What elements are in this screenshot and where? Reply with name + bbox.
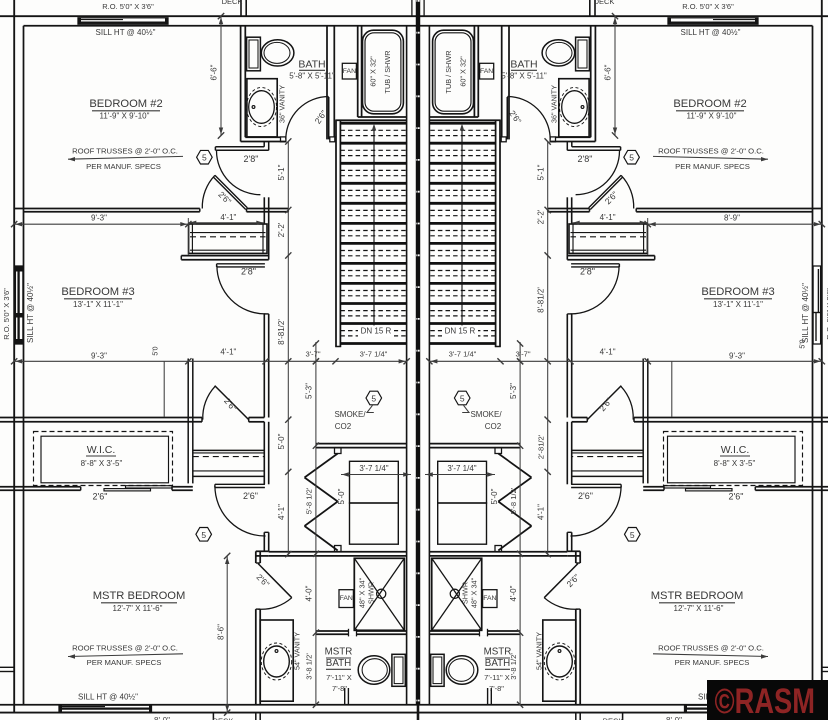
svg-text:5'-3": 5'-3" bbox=[305, 383, 314, 399]
svg-text:5'-0": 5'-0" bbox=[490, 488, 499, 504]
svg-text:8'-8" X 3'-5": 8'-8" X 3'-5" bbox=[81, 459, 123, 468]
svg-text:11'-9" X 9'-10": 11'-9" X 9'-10" bbox=[100, 112, 150, 121]
svg-text:8'-81/2': 8'-81/2' bbox=[536, 287, 545, 313]
svg-text:5'0: 5'0 bbox=[153, 346, 160, 355]
svg-text:BEDROOM #2: BEDROOM #2 bbox=[673, 98, 746, 110]
svg-text:4'-1": 4'-1" bbox=[536, 504, 545, 520]
svg-text:7'-11" X: 7'-11" X bbox=[484, 673, 510, 682]
svg-text:9'-3": 9'-3" bbox=[729, 351, 745, 360]
svg-text:3'-7 1/4": 3'-7 1/4" bbox=[360, 350, 388, 359]
svg-text:8'-0": 8'-0" bbox=[154, 716, 170, 720]
svg-text:TUB / SHWR: TUB / SHWR bbox=[444, 51, 453, 94]
svg-text:4'-1": 4'-1" bbox=[277, 504, 286, 520]
svg-text:ROOF TRUSSES @ 2'-0" O.C.: ROOF TRUSSES @ 2'-0" O.C. bbox=[658, 644, 764, 653]
svg-text:48" X 34": 48" X 34" bbox=[470, 577, 479, 608]
svg-text:5: 5 bbox=[201, 530, 206, 540]
svg-text:BEDROOM #3: BEDROOM #3 bbox=[701, 286, 774, 298]
svg-text:BEDROOM #2: BEDROOM #2 bbox=[89, 98, 162, 110]
svg-text:SHWR: SHWR bbox=[367, 582, 376, 604]
svg-text:W.I.C.: W.I.C. bbox=[87, 444, 116, 456]
svg-text:3'-7 1/4": 3'-7 1/4" bbox=[449, 350, 477, 359]
svg-text:W.I.C.: W.I.C. bbox=[721, 444, 750, 456]
svg-text:ROOF TRUSSES @ 2'-0" O.C.: ROOF TRUSSES @ 2'-0" O.C. bbox=[72, 644, 178, 653]
svg-text:4'-0": 4'-0" bbox=[305, 585, 314, 601]
svg-text:ROOF TRUSSES @ 2'-0" O.C.: ROOF TRUSSES @ 2'-0" O.C. bbox=[658, 147, 764, 156]
svg-text:R.O. 5'0" X 3'6": R.O. 5'0" X 3'6" bbox=[2, 288, 11, 340]
svg-text:7'-11" X: 7'-11" X bbox=[326, 673, 352, 682]
svg-text:2'6": 2'6" bbox=[729, 492, 744, 502]
svg-text:5: 5 bbox=[371, 394, 376, 404]
svg-text:2'8": 2'8" bbox=[580, 267, 595, 277]
svg-text:MSTR BEDROOM: MSTR BEDROOM bbox=[93, 590, 186, 602]
svg-text:5'-3": 5'-3" bbox=[509, 383, 518, 399]
svg-text:5'-1": 5'-1" bbox=[536, 164, 545, 180]
svg-text:5'-1": 5'-1" bbox=[277, 164, 286, 180]
svg-text:9'-3": 9'-3" bbox=[91, 214, 107, 223]
svg-text:60" X 32": 60" X 32" bbox=[368, 56, 377, 87]
svg-text:2'8": 2'8" bbox=[241, 267, 256, 277]
svg-text:MSTR: MSTR bbox=[325, 647, 353, 658]
svg-text:DECK: DECK bbox=[594, 0, 615, 6]
svg-text:6'-6": 6'-6" bbox=[604, 64, 613, 80]
svg-text:3'-8 1/2': 3'-8 1/2' bbox=[305, 653, 314, 680]
svg-text:SILL HT @ 40½": SILL HT @ 40½" bbox=[801, 283, 810, 343]
svg-text:DECK: DECK bbox=[222, 0, 243, 6]
svg-text:BEDROOM #3: BEDROOM #3 bbox=[61, 286, 134, 298]
svg-text:4'-1": 4'-1" bbox=[600, 213, 616, 222]
svg-text:SILL HT @ 40½": SILL HT @ 40½" bbox=[96, 28, 156, 37]
svg-text:13'-1" X 11'-1": 13'-1" X 11'-1" bbox=[713, 300, 763, 309]
svg-text:5: 5 bbox=[202, 153, 207, 163]
svg-text:MSTR: MSTR bbox=[484, 647, 512, 658]
svg-text:3'-7": 3'-7" bbox=[305, 350, 320, 359]
svg-text:4'-0": 4'-0" bbox=[509, 585, 518, 601]
svg-text:BATH: BATH bbox=[298, 59, 325, 71]
svg-text:5: 5 bbox=[630, 530, 635, 540]
svg-text:SMOKE/: SMOKE/ bbox=[470, 410, 502, 419]
svg-text:12'-7" X 11'-6": 12'-7" X 11'-6" bbox=[113, 604, 163, 613]
svg-text:7'-8": 7'-8" bbox=[332, 684, 347, 693]
svg-text:TUB / SHWR: TUB / SHWR bbox=[383, 51, 392, 94]
svg-text:FAN: FAN bbox=[483, 595, 496, 602]
svg-text:DN 15 R: DN 15 R bbox=[445, 326, 476, 335]
svg-text:5'-8 1/2': 5'-8 1/2' bbox=[305, 487, 314, 514]
svg-text:2'8": 2'8" bbox=[244, 154, 259, 164]
svg-text:5'-0": 5'-0" bbox=[337, 488, 346, 504]
svg-text:5: 5 bbox=[460, 394, 465, 404]
svg-text:8'-8" X 3'-5": 8'-8" X 3'-5" bbox=[714, 459, 756, 468]
svg-text:3'-7": 3'-7" bbox=[515, 350, 530, 359]
svg-text:48" X 34": 48" X 34" bbox=[358, 577, 367, 608]
svg-text:PER MANUF. SPECS: PER MANUF. SPECS bbox=[86, 162, 161, 171]
svg-text:FAN: FAN bbox=[343, 68, 356, 75]
svg-text:PER MANUF. SPECS: PER MANUF. SPECS bbox=[87, 658, 162, 667]
svg-text:7'-8": 7'-8" bbox=[489, 684, 504, 693]
svg-text:BATH: BATH bbox=[326, 658, 351, 669]
svg-text:R.O. 5'0" X 3'6": R.O. 5'0" X 3'6" bbox=[102, 2, 154, 11]
svg-text:5'-8" X 5'-11": 5'-8" X 5'-11" bbox=[289, 72, 335, 81]
svg-text:ROOF TRUSSES @ 2'-0" O.C.: ROOF TRUSSES @ 2'-0" O.C. bbox=[72, 147, 178, 156]
svg-text:R.O. 5'0" X 3'6": R.O. 5'0" X 3'6" bbox=[682, 2, 734, 11]
svg-text:DECK: DECK bbox=[603, 717, 624, 720]
svg-text:2'6": 2'6" bbox=[578, 491, 593, 501]
svg-text:11'-9" X 9'-10": 11'-9" X 9'-10" bbox=[687, 112, 737, 121]
svg-text:SILL HT @ 40½": SILL HT @ 40½" bbox=[681, 28, 741, 37]
svg-text:2'-81/2': 2'-81/2' bbox=[536, 434, 545, 459]
svg-text:SILL HT @ 40½": SILL HT @ 40½" bbox=[78, 693, 138, 702]
svg-text:BATH: BATH bbox=[485, 658, 510, 669]
svg-text:6'-6": 6'-6" bbox=[210, 64, 219, 80]
svg-text:BATH: BATH bbox=[510, 59, 537, 71]
svg-text:5: 5 bbox=[629, 153, 634, 163]
svg-text:©RASM: ©RASM bbox=[715, 682, 815, 720]
svg-text:2'6": 2'6" bbox=[93, 492, 108, 502]
svg-text:9'-3": 9'-3" bbox=[91, 351, 107, 360]
svg-text:3'-7 1/4": 3'-7 1/4" bbox=[359, 464, 388, 473]
svg-text:5'-8" X 5'-11": 5'-8" X 5'-11" bbox=[501, 72, 547, 81]
svg-text:PER MANUF. SPECS: PER MANUF. SPECS bbox=[675, 658, 750, 667]
svg-text:CO2: CO2 bbox=[485, 422, 502, 431]
svg-text:13'-1" X 11'-1": 13'-1" X 11'-1" bbox=[73, 300, 123, 309]
svg-text:CO2: CO2 bbox=[335, 422, 352, 431]
svg-text:2'-2': 2'-2' bbox=[277, 222, 286, 237]
svg-text:3'-8 1/2': 3'-8 1/2' bbox=[509, 653, 518, 680]
svg-text:MSTR BEDROOM: MSTR BEDROOM bbox=[651, 590, 744, 602]
svg-text:SILL HT @ 40½": SILL HT @ 40½" bbox=[26, 283, 35, 343]
svg-text:4'-1": 4'-1" bbox=[220, 348, 236, 357]
svg-text:FAN: FAN bbox=[340, 595, 353, 602]
svg-text:DECK: DECK bbox=[213, 717, 234, 720]
svg-text:FAN: FAN bbox=[480, 68, 493, 75]
svg-text:60" X 32": 60" X 32" bbox=[459, 56, 468, 87]
svg-text:4'-1": 4'-1" bbox=[600, 348, 616, 357]
svg-text:8'-0": 8'-0" bbox=[666, 716, 682, 720]
svg-text:54" VANITY: 54" VANITY bbox=[293, 632, 302, 670]
svg-text:2'-2': 2'-2' bbox=[536, 209, 545, 224]
svg-text:36" VANITY: 36" VANITY bbox=[550, 85, 559, 123]
svg-text:12'-7" X 11'-6": 12'-7" X 11'-6" bbox=[674, 604, 724, 613]
svg-text:2'6": 2'6" bbox=[243, 491, 258, 501]
svg-text:5'0: 5'0 bbox=[800, 339, 807, 348]
svg-text:5'-8 1/2': 5'-8 1/2' bbox=[509, 487, 518, 514]
svg-text:36" VANITY: 36" VANITY bbox=[277, 85, 286, 123]
svg-text:3'-7 1/4": 3'-7 1/4" bbox=[447, 464, 476, 473]
svg-text:5'-0": 5'-0" bbox=[277, 433, 286, 449]
svg-text:DN 15 R: DN 15 R bbox=[361, 326, 392, 335]
svg-text:54" VANITY: 54" VANITY bbox=[535, 632, 544, 670]
svg-text:SMOKE/: SMOKE/ bbox=[334, 410, 366, 419]
svg-text:2'8": 2'8" bbox=[578, 154, 593, 164]
svg-text:SHWR: SHWR bbox=[461, 582, 470, 604]
svg-text:4'-1": 4'-1" bbox=[220, 213, 236, 222]
svg-text:8'-9": 8'-9" bbox=[724, 214, 740, 223]
svg-text:PER MANUF. SPECS: PER MANUF. SPECS bbox=[675, 162, 750, 171]
svg-text:8'-81/2': 8'-81/2' bbox=[277, 319, 286, 345]
svg-text:8'-6": 8'-6" bbox=[217, 624, 226, 640]
